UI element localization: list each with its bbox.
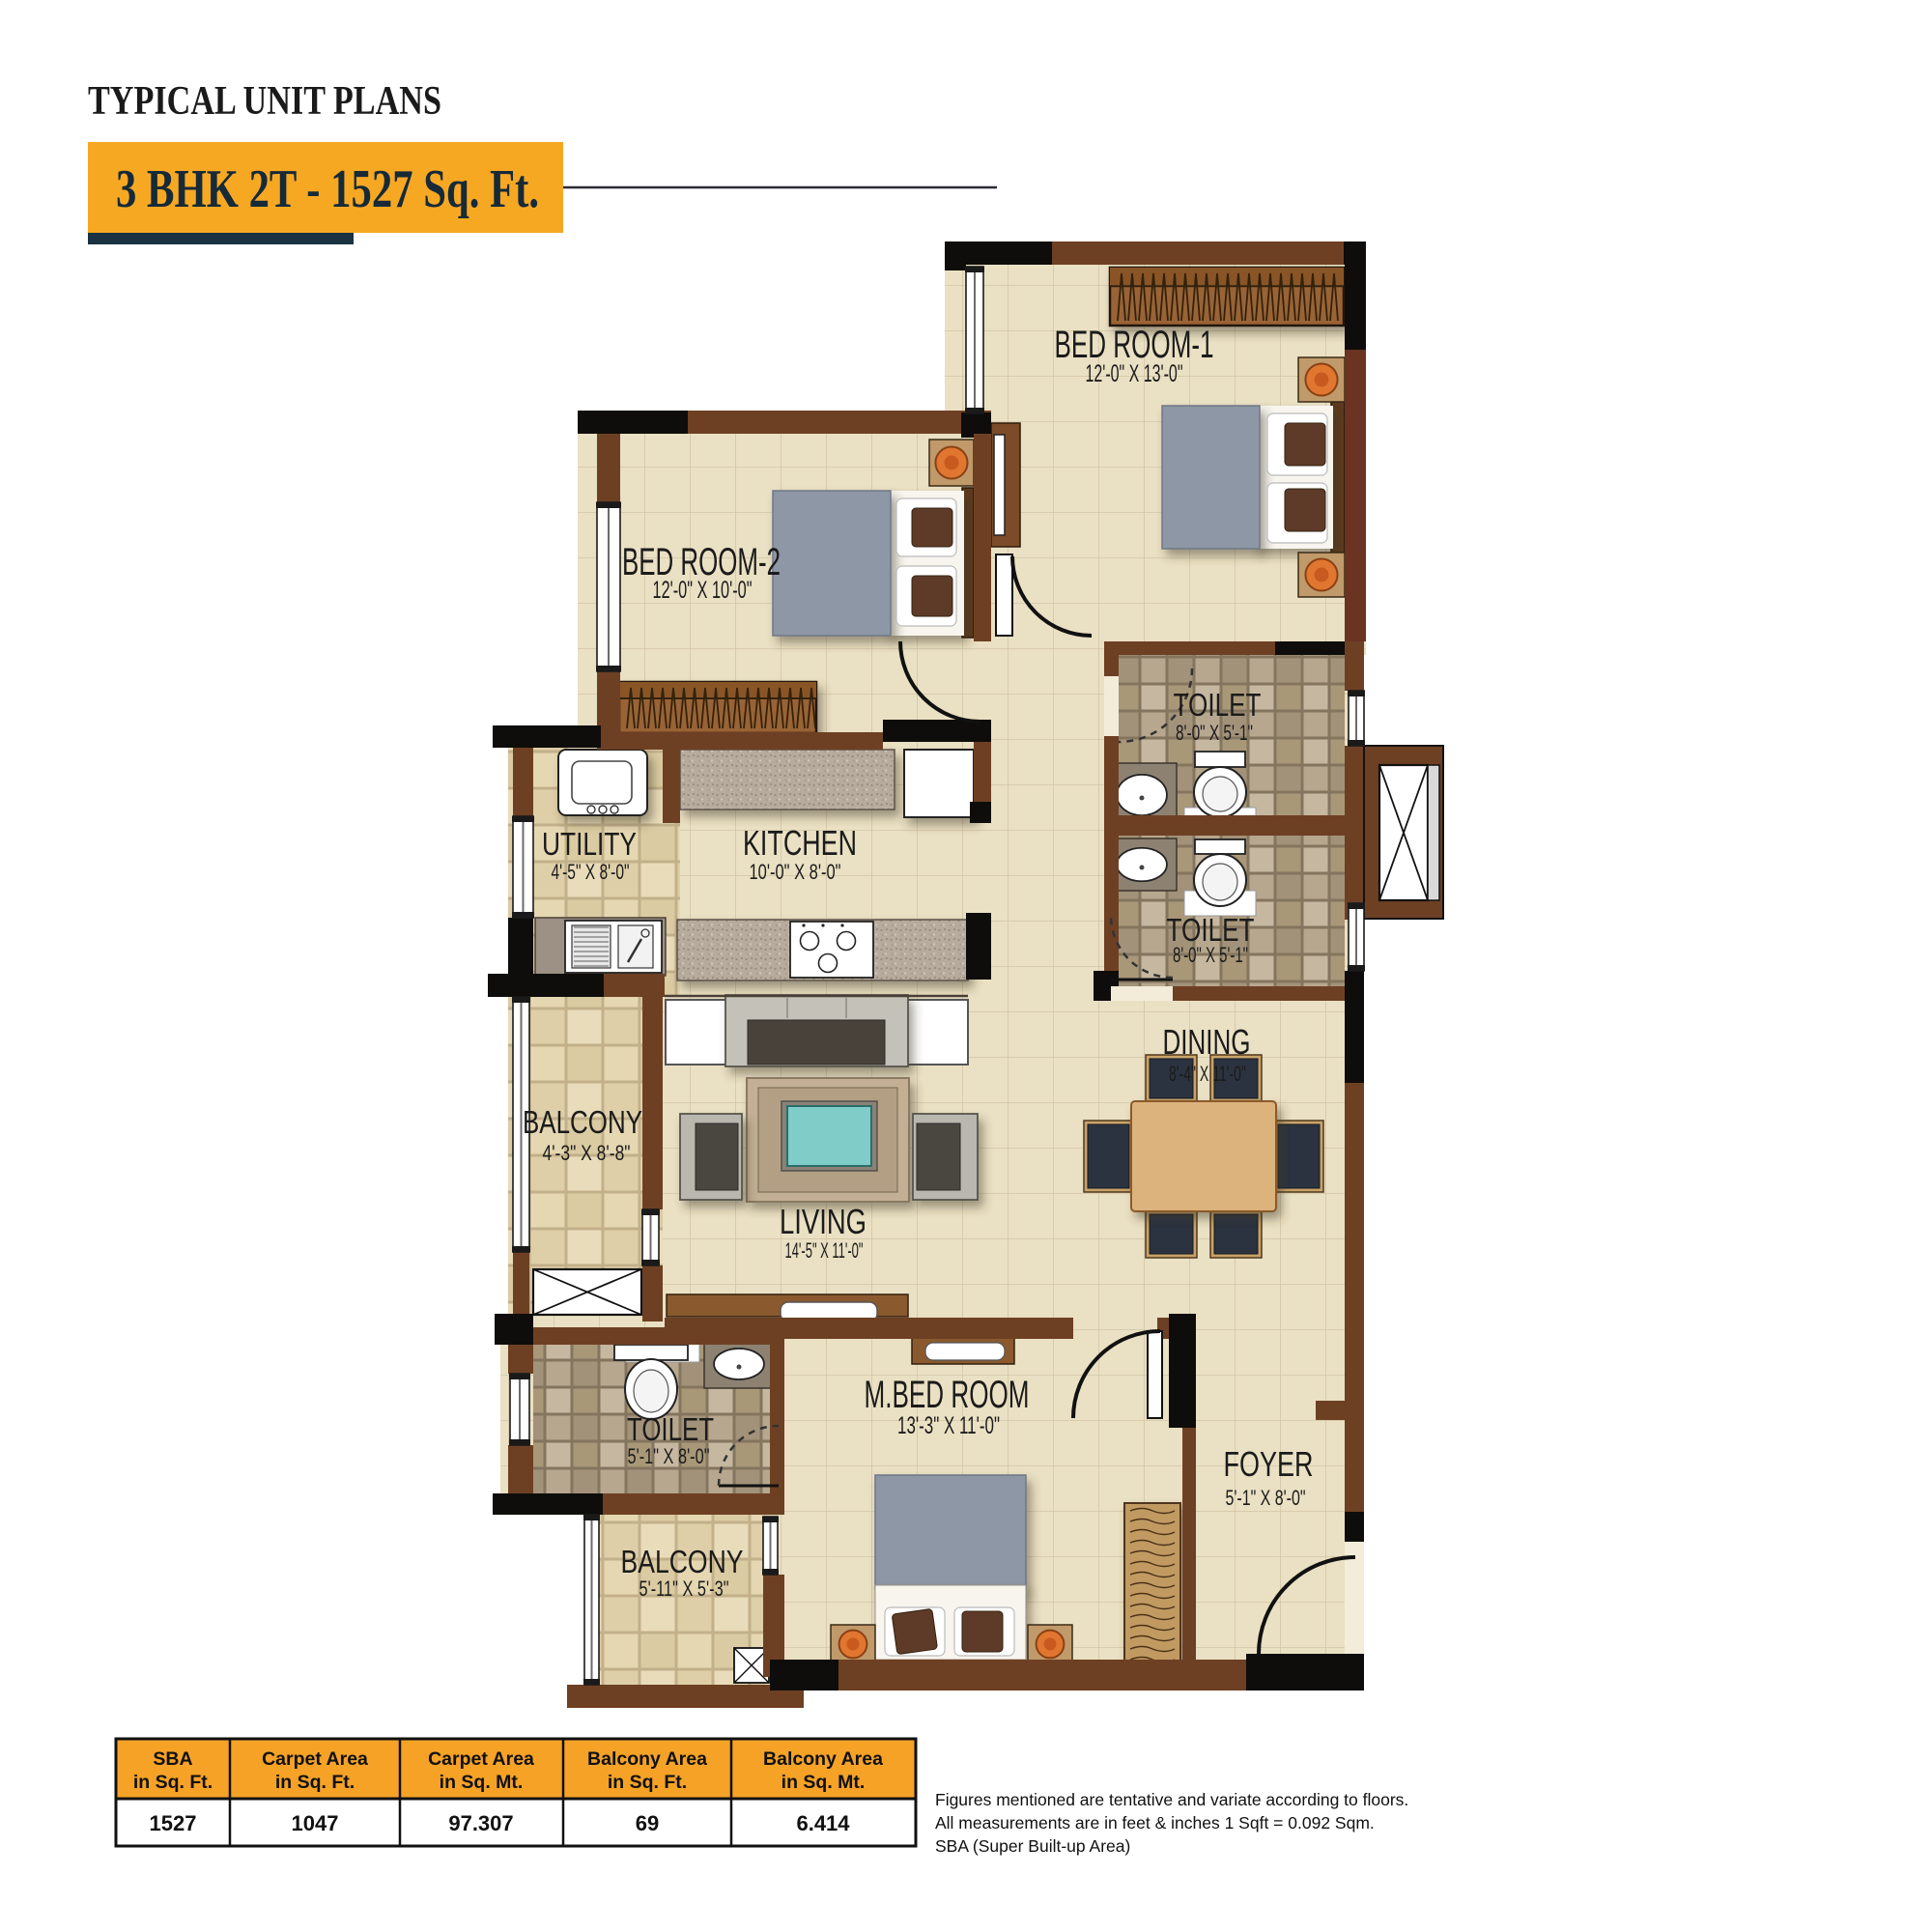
svg-text:5'-1" X 8'-0": 5'-1" X 8'-0": [628, 1444, 710, 1468]
svg-text:LIVING: LIVING: [780, 1202, 867, 1241]
svg-text:in Sq. Ft.: in Sq. Ft.: [133, 1772, 213, 1793]
svg-text:13'-3" X 11'-0": 13'-3" X 11'-0": [897, 1412, 1000, 1439]
svg-text:FOYER: FOYER: [1224, 1444, 1314, 1484]
svg-text:6.414: 6.414: [796, 1811, 850, 1835]
svg-text:4'-5" X 8'-0": 4'-5" X 8'-0": [552, 860, 630, 884]
svg-text:4'-3" X 8'-8": 4'-3" X 8'-8": [543, 1141, 631, 1165]
svg-text:8'-0" X 5'-1": 8'-0" X 5'-1": [1176, 721, 1253, 745]
svg-text:TOILET: TOILET: [627, 1411, 714, 1447]
svg-text:8'-4" X 11'-0": 8'-4" X 11'-0": [1169, 1062, 1246, 1086]
svg-text:in Sq. Ft.: in Sq. Ft.: [275, 1772, 355, 1793]
svg-text:in Sq. Mt.: in Sq. Mt.: [781, 1772, 866, 1793]
svg-text:97.307: 97.307: [448, 1811, 513, 1835]
svg-text:SBA: SBA: [153, 1748, 192, 1770]
svg-text:Carpet Area: Carpet Area: [428, 1748, 534, 1770]
svg-text:Balcony Area: Balcony Area: [587, 1748, 707, 1770]
svg-text:12'-0" X 13'-0": 12'-0" X 13'-0": [1086, 360, 1183, 387]
svg-text:Balcony Area: Balcony Area: [763, 1748, 883, 1770]
svg-text:12'-0" X 10'-0": 12'-0" X 10'-0": [653, 577, 753, 604]
svg-text:10'-0" X 8'-0": 10'-0" X 8'-0": [750, 860, 841, 884]
svg-text:14'-5" X 11'-0": 14'-5" X 11'-0": [785, 1238, 864, 1263]
svg-text:Figures mentioned are tentativ: Figures mentioned are tentative and vari…: [935, 1790, 1408, 1809]
svg-text:in Sq. Mt.: in Sq. Mt.: [440, 1772, 524, 1793]
svg-text:1047: 1047: [292, 1811, 339, 1835]
svg-text:DINING: DINING: [1163, 1022, 1251, 1062]
svg-text:All measurements are in feet &: All measurements are in feet & inches 1 …: [935, 1813, 1375, 1833]
svg-text:5'-11" X 5'-3": 5'-11" X 5'-3": [639, 1577, 729, 1601]
svg-text:5'-1" X 8'-0": 5'-1" X 8'-0": [1226, 1486, 1306, 1510]
svg-text:69: 69: [636, 1811, 659, 1835]
svg-text:BALCONY: BALCONY: [523, 1104, 642, 1140]
svg-text:8'-0" X 5'-1": 8'-0" X 5'-1": [1173, 943, 1248, 967]
svg-text:1527: 1527: [150, 1811, 197, 1835]
svg-text:KITCHEN: KITCHEN: [743, 823, 857, 863]
svg-text:3 BHK 2T - 1527 Sq. Ft.: 3 BHK 2T - 1527 Sq. Ft.: [116, 159, 539, 219]
svg-text:UTILITY: UTILITY: [542, 826, 637, 862]
svg-text:BALCONY: BALCONY: [621, 1544, 744, 1579]
svg-text:in Sq. Ft.: in Sq. Ft.: [608, 1772, 687, 1793]
svg-text:SBA (Super Built-up Area): SBA (Super Built-up Area): [935, 1836, 1130, 1856]
svg-text:M.BED ROOM: M.BED ROOM: [865, 1374, 1030, 1416]
svg-text:Carpet Area: Carpet Area: [262, 1748, 368, 1770]
svg-text:TOILET: TOILET: [1174, 687, 1262, 723]
svg-text:TYPICAL UNIT PLANS: TYPICAL UNIT PLANS: [88, 79, 441, 124]
